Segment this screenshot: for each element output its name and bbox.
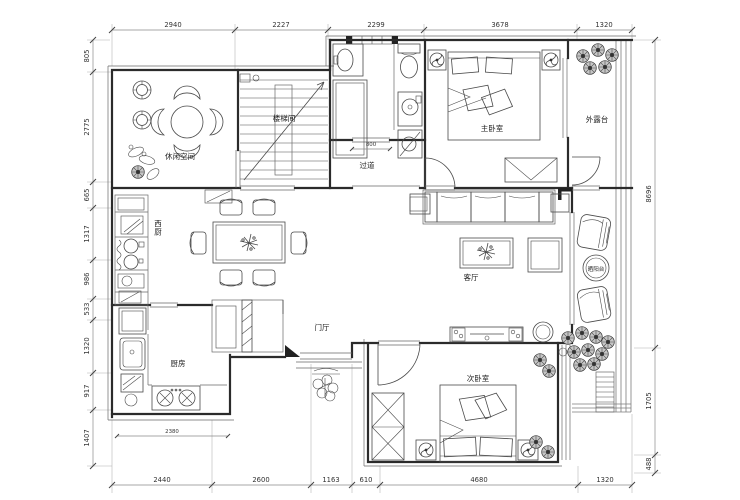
tv-console bbox=[450, 327, 523, 342]
pillow bbox=[451, 57, 478, 74]
dim-left-7: 917 bbox=[83, 385, 91, 398]
terrace-door-swing bbox=[572, 157, 600, 185]
room-living: 客厅 bbox=[410, 190, 569, 342]
dim-left-1: 2775 bbox=[83, 118, 91, 135]
dim-top-3: 3678 bbox=[491, 21, 508, 29]
vanity bbox=[333, 44, 363, 76]
dim-left-4: 986 bbox=[83, 273, 91, 286]
entry-plant bbox=[312, 369, 340, 402]
dim-right-2: 488 bbox=[645, 458, 653, 471]
room-label-living: 客厅 bbox=[464, 272, 479, 282]
room-label-leisure: 休闲空间 bbox=[165, 151, 195, 161]
cooktop bbox=[152, 386, 200, 410]
dim-left-2: 665 bbox=[83, 189, 91, 202]
bed2 bbox=[440, 385, 516, 462]
washing-machine bbox=[398, 130, 422, 158]
floor-plants bbox=[127, 145, 161, 182]
dim-top-1: 2227 bbox=[272, 21, 289, 29]
room-label-entry-hall: 门厅 bbox=[315, 323, 330, 332]
room-label-stairwell: 楼梯间 bbox=[273, 113, 296, 123]
room-label-west-kitchen: 西厨 bbox=[153, 219, 162, 236]
room-kitchen: 2380 厨房 bbox=[115, 305, 230, 438]
dim-top-0: 2940 bbox=[164, 21, 181, 29]
dim-right-0: 8696 bbox=[645, 185, 653, 202]
room-second-bedroom: 次卧室 bbox=[372, 343, 555, 462]
stair-rail bbox=[275, 85, 292, 175]
dim-bottom-2: 1163 bbox=[322, 476, 339, 484]
shower bbox=[333, 80, 367, 158]
step-strip bbox=[596, 372, 614, 412]
pillow bbox=[480, 437, 513, 457]
kitchen-sink bbox=[120, 338, 145, 370]
room-stairwell: 楼梯间 bbox=[240, 74, 328, 180]
dim-inner-2380: 2380 bbox=[165, 429, 179, 435]
room-west-kitchen: 西厨 bbox=[115, 195, 163, 305]
pot bbox=[125, 394, 137, 406]
room-master-bedroom: 主卧室 bbox=[425, 50, 560, 188]
sofa bbox=[423, 190, 555, 224]
dim-left-5: 533 bbox=[83, 303, 91, 316]
dim-right-1: 1705 bbox=[645, 392, 653, 409]
coffee-table bbox=[460, 238, 513, 268]
room-label-corridor: 过道 bbox=[360, 160, 375, 170]
room-label-master-bedroom: 主卧室 bbox=[481, 123, 504, 133]
room-label-outer-terrace: 外露台 bbox=[586, 114, 609, 124]
dim-bottom-3: 610 bbox=[360, 476, 373, 484]
pillow bbox=[485, 57, 512, 74]
room-entry-hall: 门厅 bbox=[212, 300, 340, 401]
entry-door-stop bbox=[285, 345, 300, 357]
sink-bowl bbox=[124, 239, 138, 253]
round-table bbox=[171, 106, 203, 138]
dim-left-3: 1317 bbox=[83, 225, 91, 242]
dimension-chain-right: 8696 1705 488 bbox=[634, 37, 661, 476]
ottoman bbox=[528, 238, 562, 272]
bench bbox=[505, 158, 557, 182]
foyer-closet bbox=[212, 300, 283, 352]
dim-bottom-4: 4680 bbox=[470, 476, 487, 484]
bedroom2-door-swing bbox=[378, 343, 420, 385]
room-label-second-bedroom: 次卧室 bbox=[467, 373, 490, 383]
dim-left-6: 1320 bbox=[83, 337, 91, 354]
fridge bbox=[119, 308, 146, 334]
dim-inner-800: 800 bbox=[366, 142, 377, 148]
room-label-kitchen: 厨房 bbox=[171, 358, 186, 368]
toilet bbox=[398, 44, 420, 78]
dim-bottom-1: 2600 bbox=[252, 476, 269, 484]
room-label-sun-balcony: 晒阳台 bbox=[588, 265, 605, 273]
room-outer-terrace: 外露台 bbox=[572, 44, 618, 185]
room-corridor: 800 过道 bbox=[350, 142, 392, 170]
coil bbox=[117, 240, 121, 270]
stair-direction-arrow bbox=[244, 82, 324, 180]
room-leisure: 休闲空间 bbox=[127, 81, 223, 182]
pillow bbox=[444, 437, 477, 457]
dimension-chain-top: 2940 2227 2299 3678 1320 bbox=[109, 21, 635, 70]
room-sun-balcony: 晒阳台 bbox=[559, 214, 614, 412]
counter bbox=[115, 195, 148, 305]
dim-bottom-0: 2440 bbox=[153, 476, 170, 484]
dim-top-2: 2299 bbox=[367, 21, 384, 29]
wardrobe bbox=[372, 393, 404, 460]
floor-plan: 2940 2227 2299 3678 1320 805 2775 665 13… bbox=[0, 0, 740, 500]
balcony-flowers bbox=[559, 327, 614, 372]
dim-left-0: 805 bbox=[83, 50, 91, 63]
wash-basin bbox=[398, 92, 422, 126]
dining-area bbox=[190, 190, 307, 286]
master-door-swing bbox=[425, 158, 455, 188]
dim-bottom-5: 1320 bbox=[596, 476, 613, 484]
dim-left-8: 1407 bbox=[83, 429, 91, 446]
dim-top-4: 1320 bbox=[595, 21, 612, 29]
